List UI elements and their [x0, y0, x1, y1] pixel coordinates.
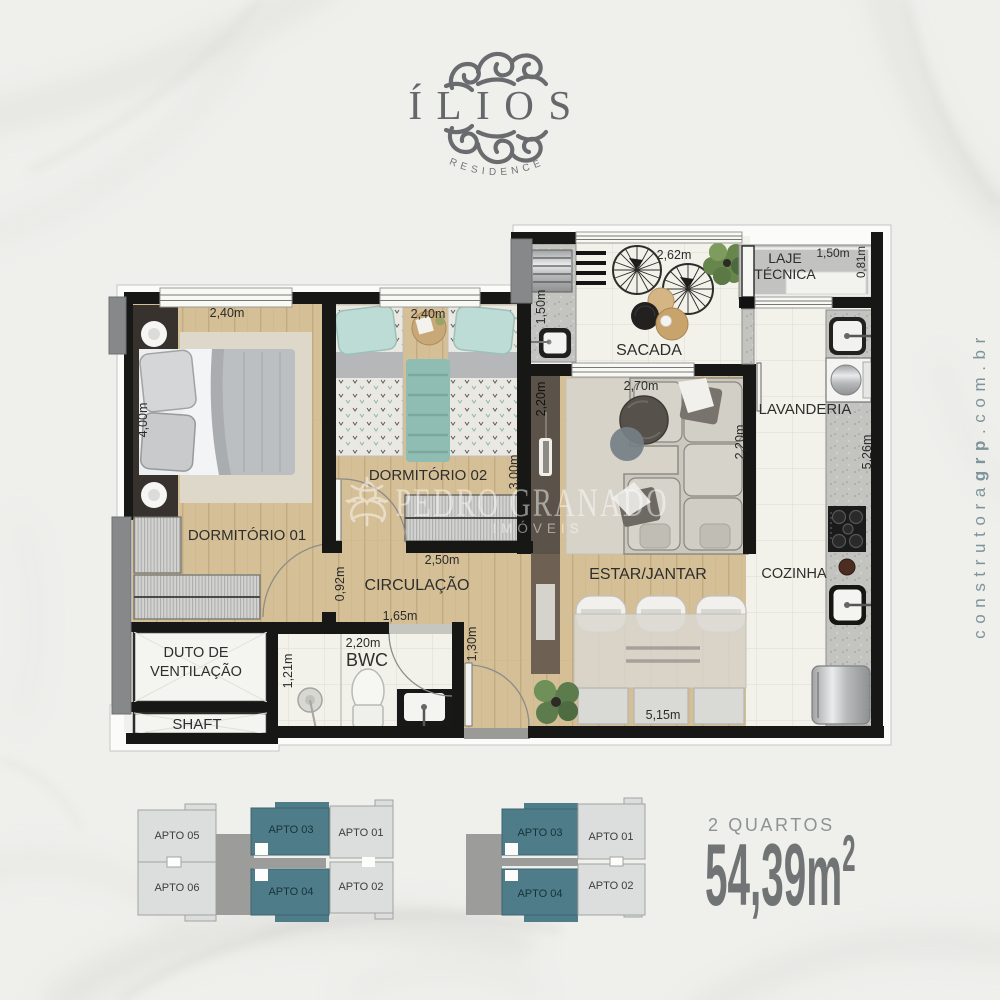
svg-text:2,70m: 2,70m: [624, 379, 659, 393]
svg-text:5,26m: 5,26m: [860, 435, 874, 470]
svg-text:CIRCULAÇÃO: CIRCULAÇÃO: [365, 574, 470, 594]
svg-text:1,50m: 1,50m: [816, 246, 849, 260]
svg-text:APTO 04: APTO 04: [517, 888, 562, 900]
svg-text:1,65m: 1,65m: [383, 609, 418, 623]
svg-text:DORMITÓRIO 01: DORMITÓRIO 01: [188, 527, 306, 544]
svg-text:COZINHA: COZINHA: [761, 566, 827, 582]
svg-text:1,30m: 1,30m: [465, 627, 479, 662]
svg-text:2,40m: 2,40m: [411, 307, 446, 321]
svg-text:2,62m: 2,62m: [657, 248, 692, 262]
svg-text:54,39m2: 54,39m2: [705, 823, 856, 924]
svg-text:APTO 01: APTO 01: [588, 831, 633, 843]
svg-text:1,21m: 1,21m: [281, 654, 295, 689]
svg-text:TÉCNICA: TÉCNICA: [754, 266, 816, 282]
svg-text:VENTILAÇÃO: VENTILAÇÃO: [150, 663, 242, 680]
svg-text:2,20m: 2,20m: [733, 425, 747, 460]
svg-text:APTO 02: APTO 02: [588, 880, 633, 892]
svg-text:ÍLIOS: ÍLIOS: [408, 82, 585, 128]
svg-text:SHAFT: SHAFT: [172, 716, 221, 733]
svg-text:LAVANDERIA: LAVANDERIA: [759, 401, 852, 418]
svg-text:4,00m: 4,00m: [136, 403, 150, 438]
svg-text:APTO 01: APTO 01: [338, 827, 383, 839]
svg-text:2,50m: 2,50m: [425, 553, 460, 567]
svg-text:APTO 04: APTO 04: [268, 886, 313, 898]
svg-text:BWC: BWC: [346, 650, 388, 670]
svg-text:IMÓVEIS: IMÓVEIS: [492, 521, 583, 536]
svg-text:2,20m: 2,20m: [534, 382, 548, 417]
svg-text:PEDRO GRANADO: PEDRO GRANADO: [395, 480, 669, 525]
svg-text:ESTAR/JANTAR: ESTAR/JANTAR: [589, 566, 707, 583]
svg-text:DUTO DE: DUTO DE: [164, 645, 229, 661]
svg-text:1,50m: 1,50m: [534, 290, 548, 325]
svg-text:LAJE: LAJE: [768, 250, 801, 266]
svg-text:5,15m: 5,15m: [646, 708, 681, 722]
svg-text:APTO 02: APTO 02: [338, 881, 383, 893]
svg-text:APTO 05: APTO 05: [154, 830, 199, 842]
svg-text:0,81m: 0,81m: [856, 246, 868, 278]
svg-text:2,40m: 2,40m: [210, 306, 245, 320]
svg-text:APTO 03: APTO 03: [517, 827, 562, 839]
svg-text:2,20m: 2,20m: [346, 636, 381, 650]
svg-text:APTO 06: APTO 06: [154, 882, 199, 894]
svg-text:0,92m: 0,92m: [333, 567, 347, 602]
svg-text:APTO 03: APTO 03: [268, 824, 313, 836]
svg-text:SACADA: SACADA: [616, 342, 682, 359]
svg-text:construtoragrp.com.br: construtoragrp.com.br: [970, 331, 989, 639]
